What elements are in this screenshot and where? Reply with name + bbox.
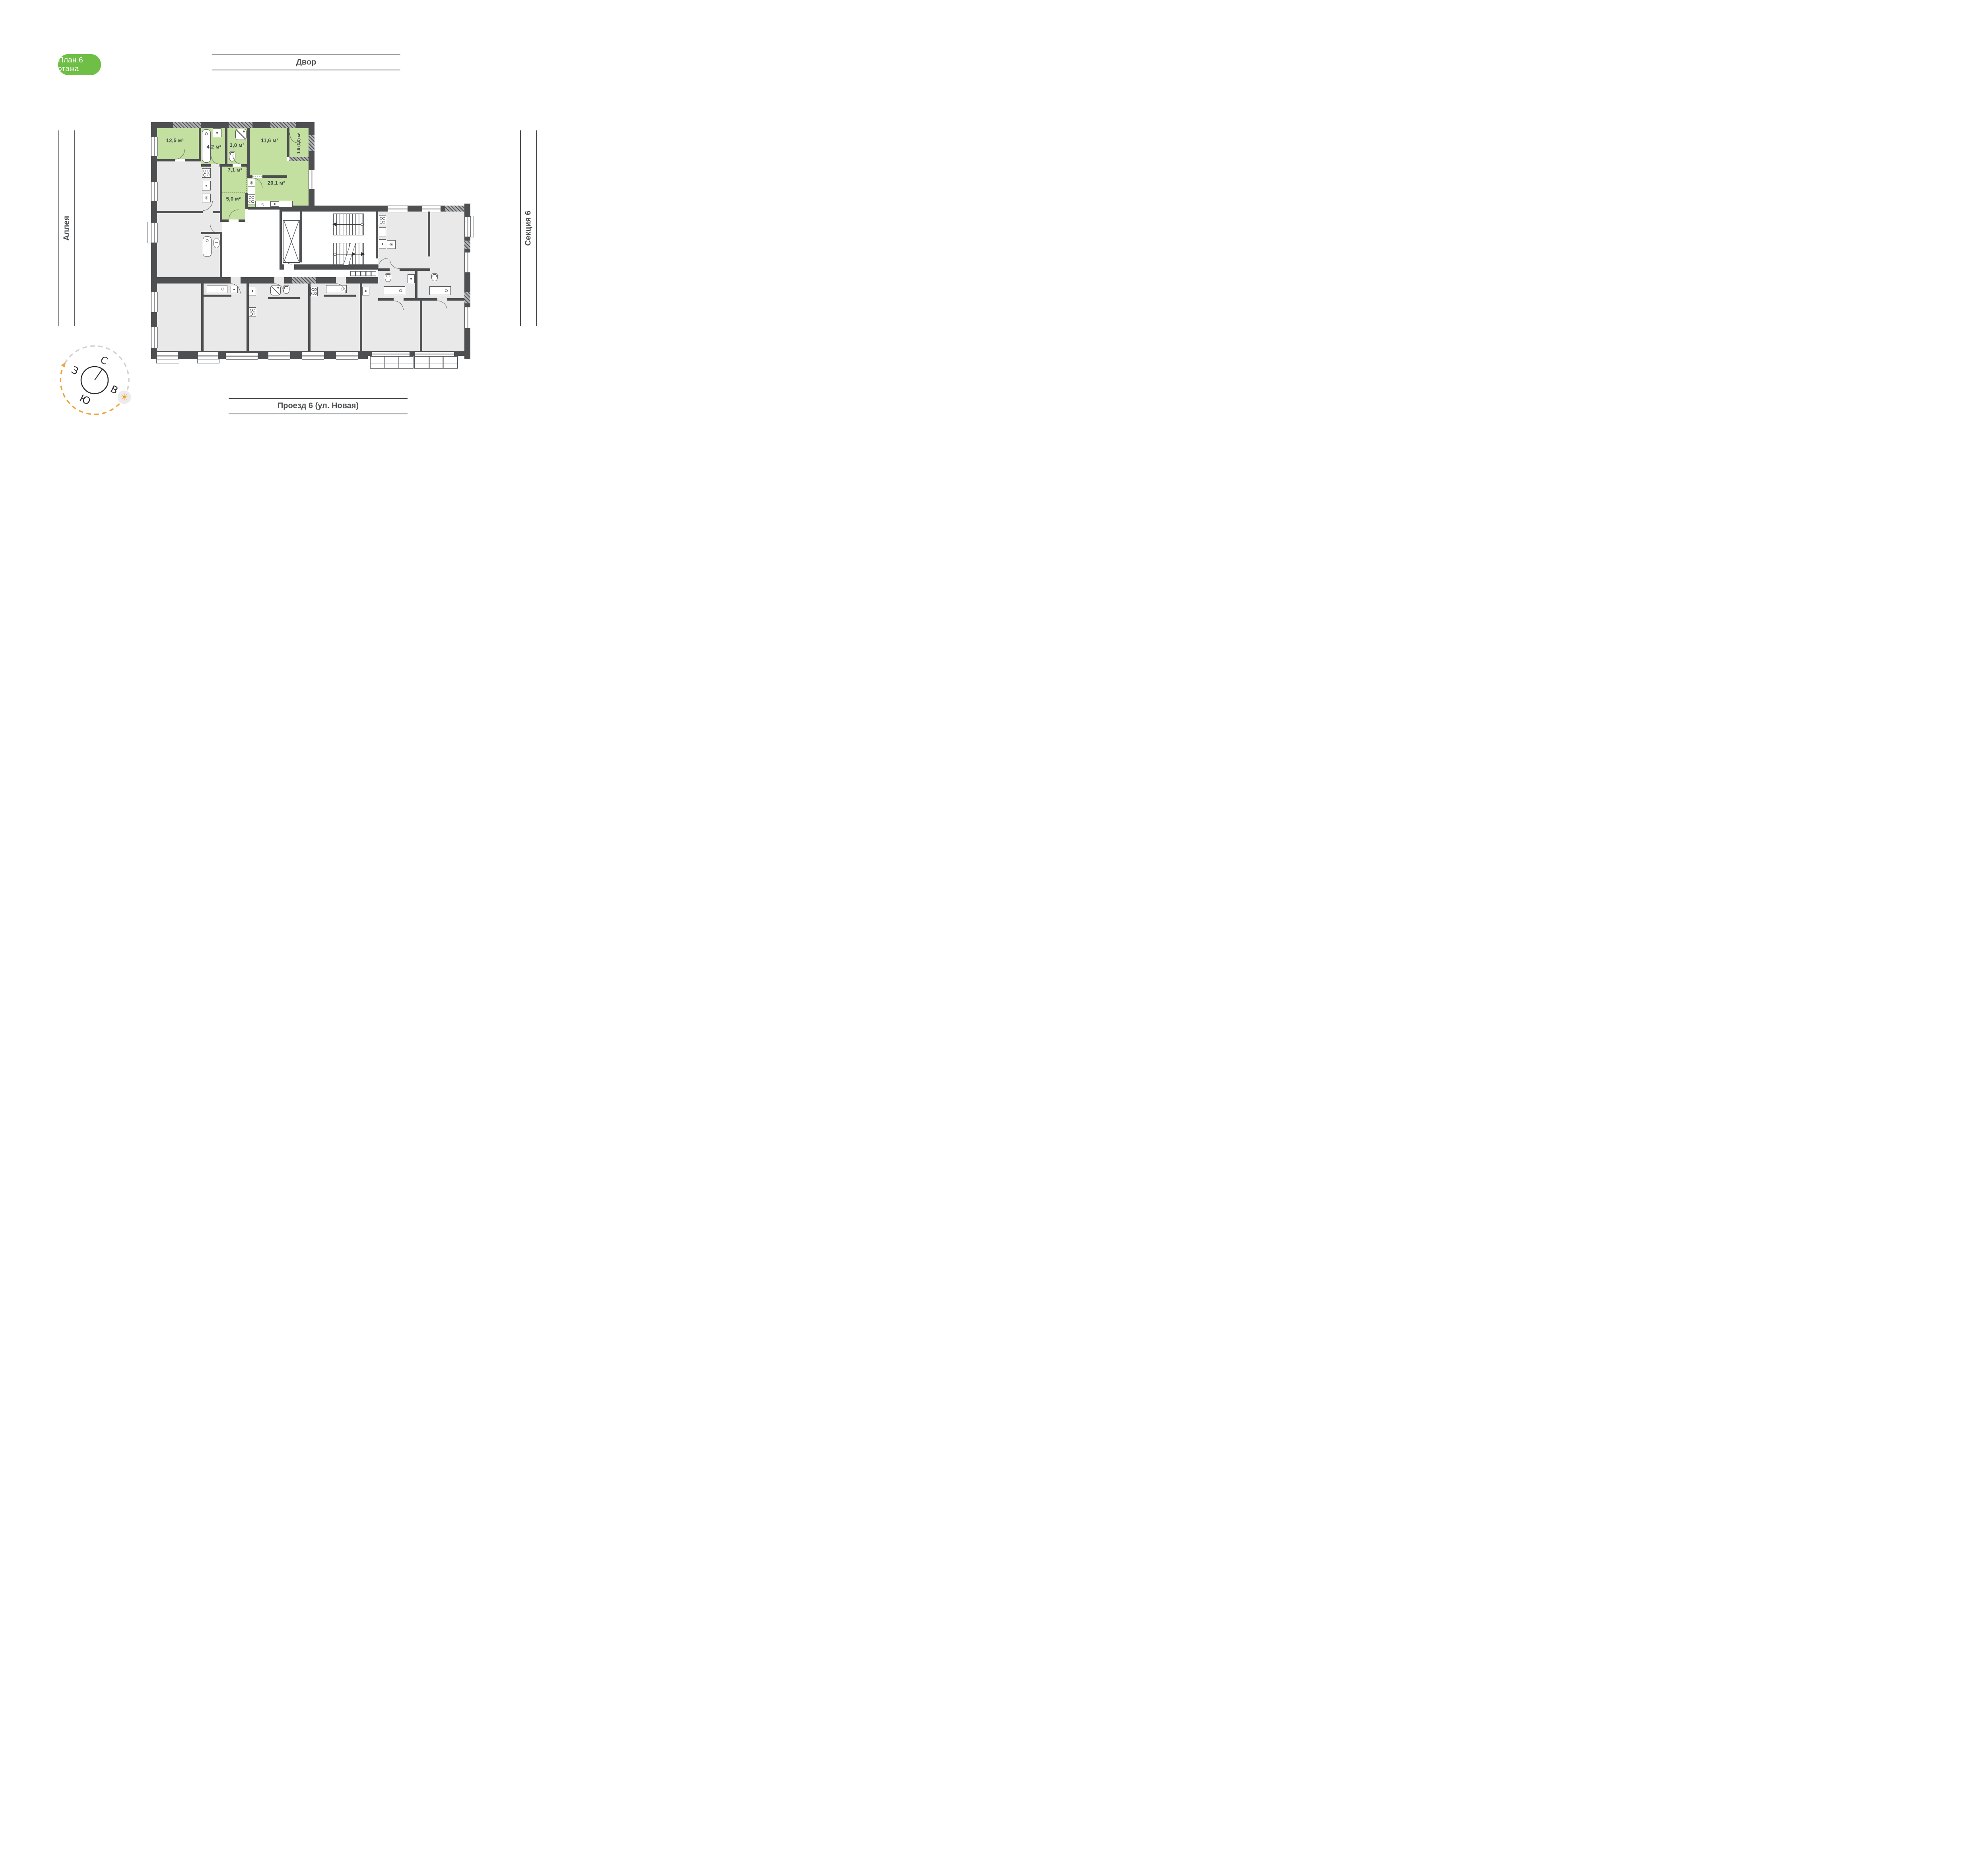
- corridor: [222, 210, 282, 277]
- stairs-direction-line: [335, 224, 361, 225]
- sink-icon: [362, 287, 369, 295]
- wall: [378, 268, 390, 271]
- area-label-kitchen-living: 20,1 м²: [268, 180, 285, 186]
- window-sill: [148, 222, 151, 243]
- section-label-right: Секция 6: [524, 211, 533, 246]
- floor-plan-page: План 6 этажа Двор Аллея Секция 6 Проезд …: [0, 0, 596, 468]
- wall-hatch: [270, 122, 296, 128]
- window: [268, 352, 290, 360]
- wall: [346, 277, 378, 284]
- wall-hatch: [173, 122, 201, 128]
- stove-icon: [311, 287, 318, 296]
- window: [226, 353, 258, 360]
- wall: [447, 298, 464, 301]
- wall: [157, 277, 231, 284]
- wall: [213, 211, 220, 213]
- window: [422, 206, 441, 212]
- wall: [280, 212, 282, 270]
- toilet-icon: [431, 273, 438, 281]
- wall: [250, 175, 252, 178]
- window: [302, 352, 324, 360]
- wall: [262, 175, 287, 178]
- stove-icon: [249, 307, 256, 317]
- sink-icon: [202, 181, 211, 190]
- faucet-icon: ◁: [259, 201, 266, 207]
- stairs-start-dot: [361, 223, 363, 226]
- wall: [157, 211, 203, 213]
- street-label-bottom: Проезд 6 (ул. Новая): [278, 402, 359, 411]
- wall: [248, 207, 309, 210]
- bathtub-icon: [429, 286, 451, 295]
- wall-hatch: [289, 157, 309, 161]
- street-line-bottom-2: [229, 414, 408, 414]
- toilet-icon: [214, 239, 219, 248]
- wall: [247, 128, 250, 178]
- street-line-bottom-1: [229, 398, 408, 399]
- stove-icon: [202, 168, 211, 178]
- wall: [324, 295, 356, 297]
- floor-badge[interactable]: План 6 этажа: [58, 54, 101, 75]
- wall: [199, 128, 201, 161]
- wall: [378, 298, 394, 301]
- window-sill: [156, 359, 179, 363]
- dashed-line: [252, 177, 262, 177]
- window: [151, 137, 158, 156]
- street-line-left-1: [58, 130, 59, 326]
- unit-gray-left-wing: [157, 161, 222, 277]
- balcony-box: [370, 356, 414, 369]
- window: [388, 206, 408, 212]
- stairs-direction-line: [335, 254, 361, 254]
- bathtub-icon: [203, 236, 212, 257]
- window: [464, 252, 471, 272]
- stove-icon: [379, 216, 386, 225]
- wall: [220, 234, 222, 277]
- wall: [157, 159, 175, 161]
- wall: [201, 164, 211, 167]
- stairs-arrow-icon: [352, 252, 356, 256]
- dashed-line: [247, 167, 247, 193]
- wall: [428, 212, 430, 256]
- wall: [415, 271, 417, 298]
- window: [464, 307, 471, 328]
- section-line-right-1: [520, 130, 521, 326]
- balcony-box: [414, 356, 458, 369]
- wall-hatch: [292, 277, 316, 284]
- compass-south: Ю: [78, 392, 92, 407]
- toilet-icon: [385, 273, 391, 282]
- wall-hatch: [229, 122, 252, 128]
- sink-icon: [249, 287, 256, 295]
- stairs-arrow-icon: [332, 222, 336, 226]
- wall: [222, 219, 229, 222]
- window: [151, 223, 158, 243]
- wall: [151, 351, 368, 359]
- floor-plan: ✳ ✳ ✳ ◁: [151, 121, 471, 376]
- compass: С В Ю З ☀: [49, 334, 140, 426]
- stairs-arrow-icon: [361, 252, 365, 256]
- wall-hatch: [464, 241, 470, 249]
- area-label-hallway: 7,1 м²: [228, 167, 243, 173]
- kitchen-counter: [379, 227, 386, 237]
- window: [151, 292, 158, 312]
- street-label-left: Аллея: [62, 216, 72, 241]
- wall: [287, 128, 289, 157]
- wall: [420, 301, 422, 351]
- window: [309, 170, 315, 189]
- sink-icon: [213, 128, 221, 137]
- section-line-right-2: [536, 130, 537, 326]
- area-label-wardrobe: 5,0 м²: [226, 196, 241, 202]
- wall: [404, 298, 437, 301]
- street-line-top-1: [212, 54, 400, 55]
- sun-icon: ☀: [120, 392, 129, 403]
- window: [151, 182, 158, 201]
- stove-icon: [248, 195, 255, 204]
- street-label-top: Двор: [296, 58, 316, 67]
- wall: [268, 297, 300, 299]
- wall: [220, 167, 222, 222]
- bathtub-icon: [384, 286, 405, 295]
- bathtub-icon: [207, 285, 227, 293]
- area-label-balcony: 1,5 (3,0) м²: [297, 132, 301, 153]
- area-label-wc: 3,0 м²: [230, 142, 245, 148]
- wall-hatch: [309, 135, 315, 151]
- kitchen-counter: [248, 187, 255, 195]
- wall: [241, 277, 274, 284]
- shower-icon: [235, 129, 247, 140]
- wall: [376, 212, 378, 258]
- wall-hatch: [445, 206, 465, 212]
- wall: [201, 284, 204, 351]
- apartment-bedroom-11-6[interactable]: [250, 128, 287, 175]
- wall: [239, 219, 245, 222]
- window: [336, 352, 358, 360]
- appliance-icon: ✳: [387, 240, 396, 249]
- apartment-kitchen-living-2[interactable]: [287, 161, 309, 207]
- sink-icon: [379, 239, 386, 249]
- window: [198, 352, 218, 360]
- street-line-left-2: [74, 130, 75, 326]
- wall: [204, 295, 231, 297]
- compass-north: С: [99, 354, 110, 367]
- window-sill: [197, 359, 219, 363]
- street-line-top-2: [212, 70, 400, 70]
- wall-hatch: [464, 292, 470, 303]
- sink-icon: [408, 274, 415, 283]
- compass-west: З: [70, 364, 80, 377]
- wall: [282, 264, 284, 270]
- arrow-icon: [61, 361, 67, 367]
- wall: [225, 128, 227, 164]
- sink-icon: [270, 201, 279, 207]
- area-label-bedroom: 11,6 м²: [261, 138, 278, 144]
- stair-railing-icon: [350, 271, 376, 276]
- area-label-room: 12,5 м²: [166, 138, 184, 144]
- stairs-start-dot: [334, 253, 336, 256]
- dashed-line: [222, 192, 245, 192]
- window-sill: [470, 216, 474, 237]
- window: [151, 327, 158, 348]
- window: [157, 352, 178, 360]
- area-label-bathroom: 4,2 м²: [207, 144, 221, 150]
